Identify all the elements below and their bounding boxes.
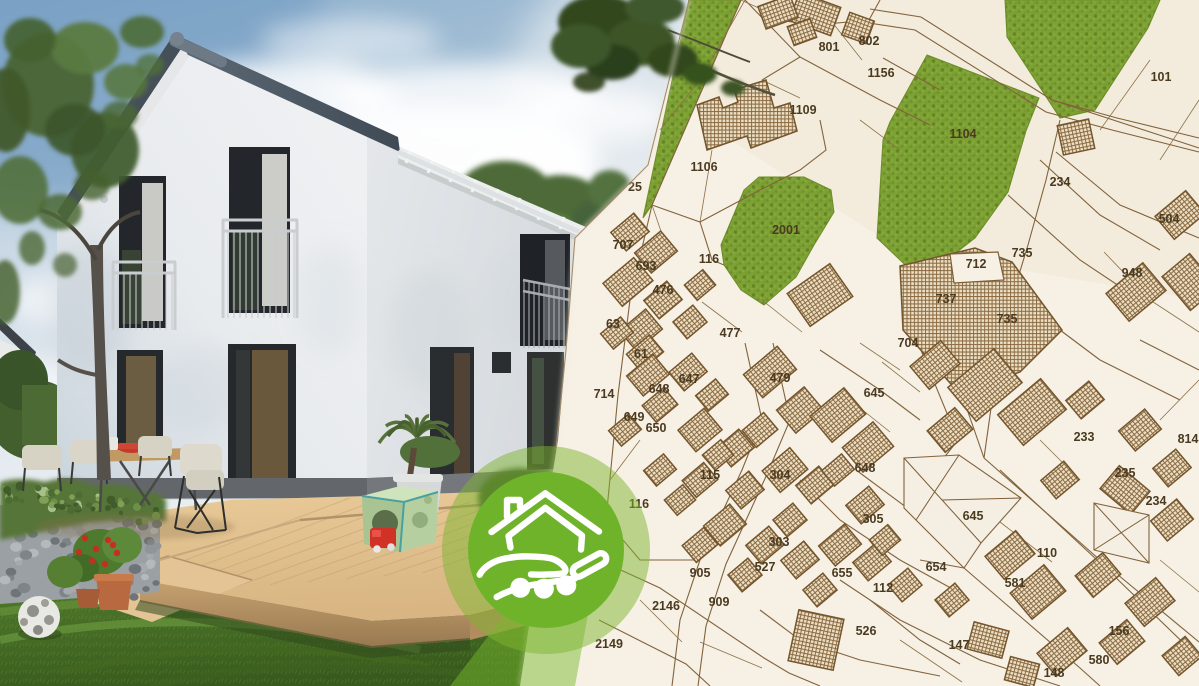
svg-text:704: 704 [898,336,919,350]
svg-text:147: 147 [949,638,970,652]
svg-text:63: 63 [606,317,620,331]
svg-text:115: 115 [700,468,720,482]
svg-text:61: 61 [634,347,648,361]
svg-text:479: 479 [770,371,791,385]
svg-text:735: 735 [997,312,1018,326]
svg-text:526: 526 [856,624,877,638]
svg-text:645: 645 [963,509,984,523]
svg-text:581: 581 [1005,576,1026,590]
svg-text:110: 110 [1037,546,1057,560]
svg-text:735: 735 [1012,246,1033,260]
svg-text:305: 305 [863,512,884,526]
svg-text:1104: 1104 [949,127,976,141]
svg-text:655: 655 [832,566,853,580]
svg-text:580: 580 [1089,653,1110,667]
svg-text:648: 648 [855,461,876,475]
svg-text:647: 647 [679,372,700,386]
svg-text:101: 101 [1151,70,1172,84]
svg-text:801: 801 [819,40,840,54]
svg-text:303: 303 [769,535,790,549]
svg-text:693: 693 [636,259,657,273]
svg-text:909: 909 [709,595,730,609]
svg-text:234: 234 [1050,175,1071,189]
svg-text:112: 112 [873,581,893,595]
svg-text:156: 156 [1109,624,1130,638]
svg-text:1156: 1156 [867,66,894,80]
svg-text:802: 802 [859,34,880,48]
svg-text:714: 714 [594,387,615,401]
svg-text:148: 148 [1044,666,1065,680]
svg-text:304: 304 [770,468,791,482]
svg-text:477: 477 [720,326,741,340]
svg-text:116: 116 [699,252,719,266]
svg-text:707: 707 [613,238,634,252]
svg-text:235: 235 [1115,466,1136,480]
svg-text:648: 648 [649,382,670,396]
svg-text:2146: 2146 [652,599,680,613]
svg-text:905: 905 [690,566,711,580]
svg-text:645: 645 [864,386,885,400]
svg-text:737: 737 [936,292,957,306]
svg-text:654: 654 [926,560,947,574]
svg-text:234: 234 [1146,494,1167,508]
svg-text:1109: 1109 [789,103,816,117]
svg-text:650: 650 [646,421,667,435]
svg-text:1106: 1106 [690,160,717,174]
svg-text:504: 504 [1159,212,1180,226]
svg-text:649: 649 [624,410,645,424]
svg-text:476: 476 [653,283,674,297]
svg-text:527: 527 [755,560,776,574]
svg-text:233: 233 [1074,430,1095,444]
svg-text:948: 948 [1122,266,1143,280]
svg-text:712: 712 [966,257,987,271]
svg-text:2001: 2001 [772,223,800,237]
svg-text:814: 814 [1178,432,1199,446]
